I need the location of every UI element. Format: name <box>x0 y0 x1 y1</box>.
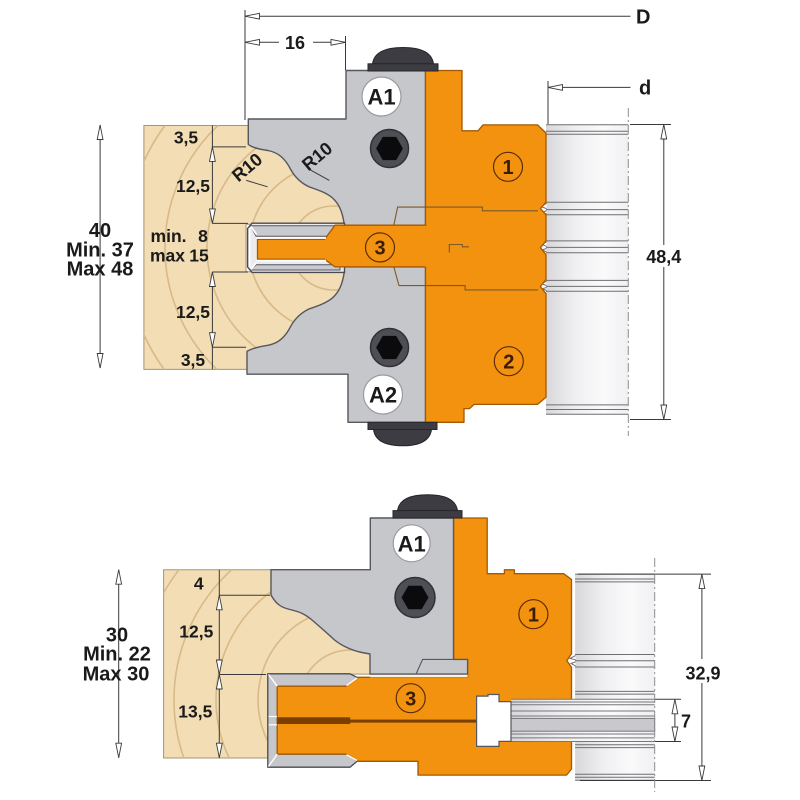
svg-text:Max 30: Max 30 <box>83 663 150 685</box>
svg-text:15: 15 <box>189 246 209 266</box>
svg-text:12,5: 12,5 <box>176 302 210 322</box>
svg-text:1: 1 <box>528 604 539 626</box>
svg-text:d: d <box>639 78 651 100</box>
svg-text:A1: A1 <box>398 531 426 556</box>
svg-text:7: 7 <box>681 711 691 731</box>
svg-text:13,5: 13,5 <box>178 701 212 721</box>
svg-text:32,9: 32,9 <box>685 664 720 684</box>
svg-text:A2: A2 <box>369 383 397 408</box>
svg-text:16: 16 <box>285 33 305 53</box>
svg-text:3: 3 <box>405 688 416 710</box>
svg-text:A1: A1 <box>367 85 395 110</box>
svg-text:1: 1 <box>502 157 513 179</box>
svg-text:3,5: 3,5 <box>181 350 206 370</box>
svg-text:Max 48: Max 48 <box>67 259 134 281</box>
svg-text:D: D <box>636 7 650 29</box>
svg-text:max: max <box>150 246 185 266</box>
svg-text:8: 8 <box>198 226 208 246</box>
svg-text:min.: min. <box>151 226 187 246</box>
svg-text:3,5: 3,5 <box>174 128 199 148</box>
svg-text:48,4: 48,4 <box>646 247 681 267</box>
svg-text:4: 4 <box>194 574 204 594</box>
svg-text:2: 2 <box>503 351 514 373</box>
svg-text:3: 3 <box>374 238 385 260</box>
svg-text:12,5: 12,5 <box>179 621 213 641</box>
svg-text:12,5: 12,5 <box>176 176 210 196</box>
